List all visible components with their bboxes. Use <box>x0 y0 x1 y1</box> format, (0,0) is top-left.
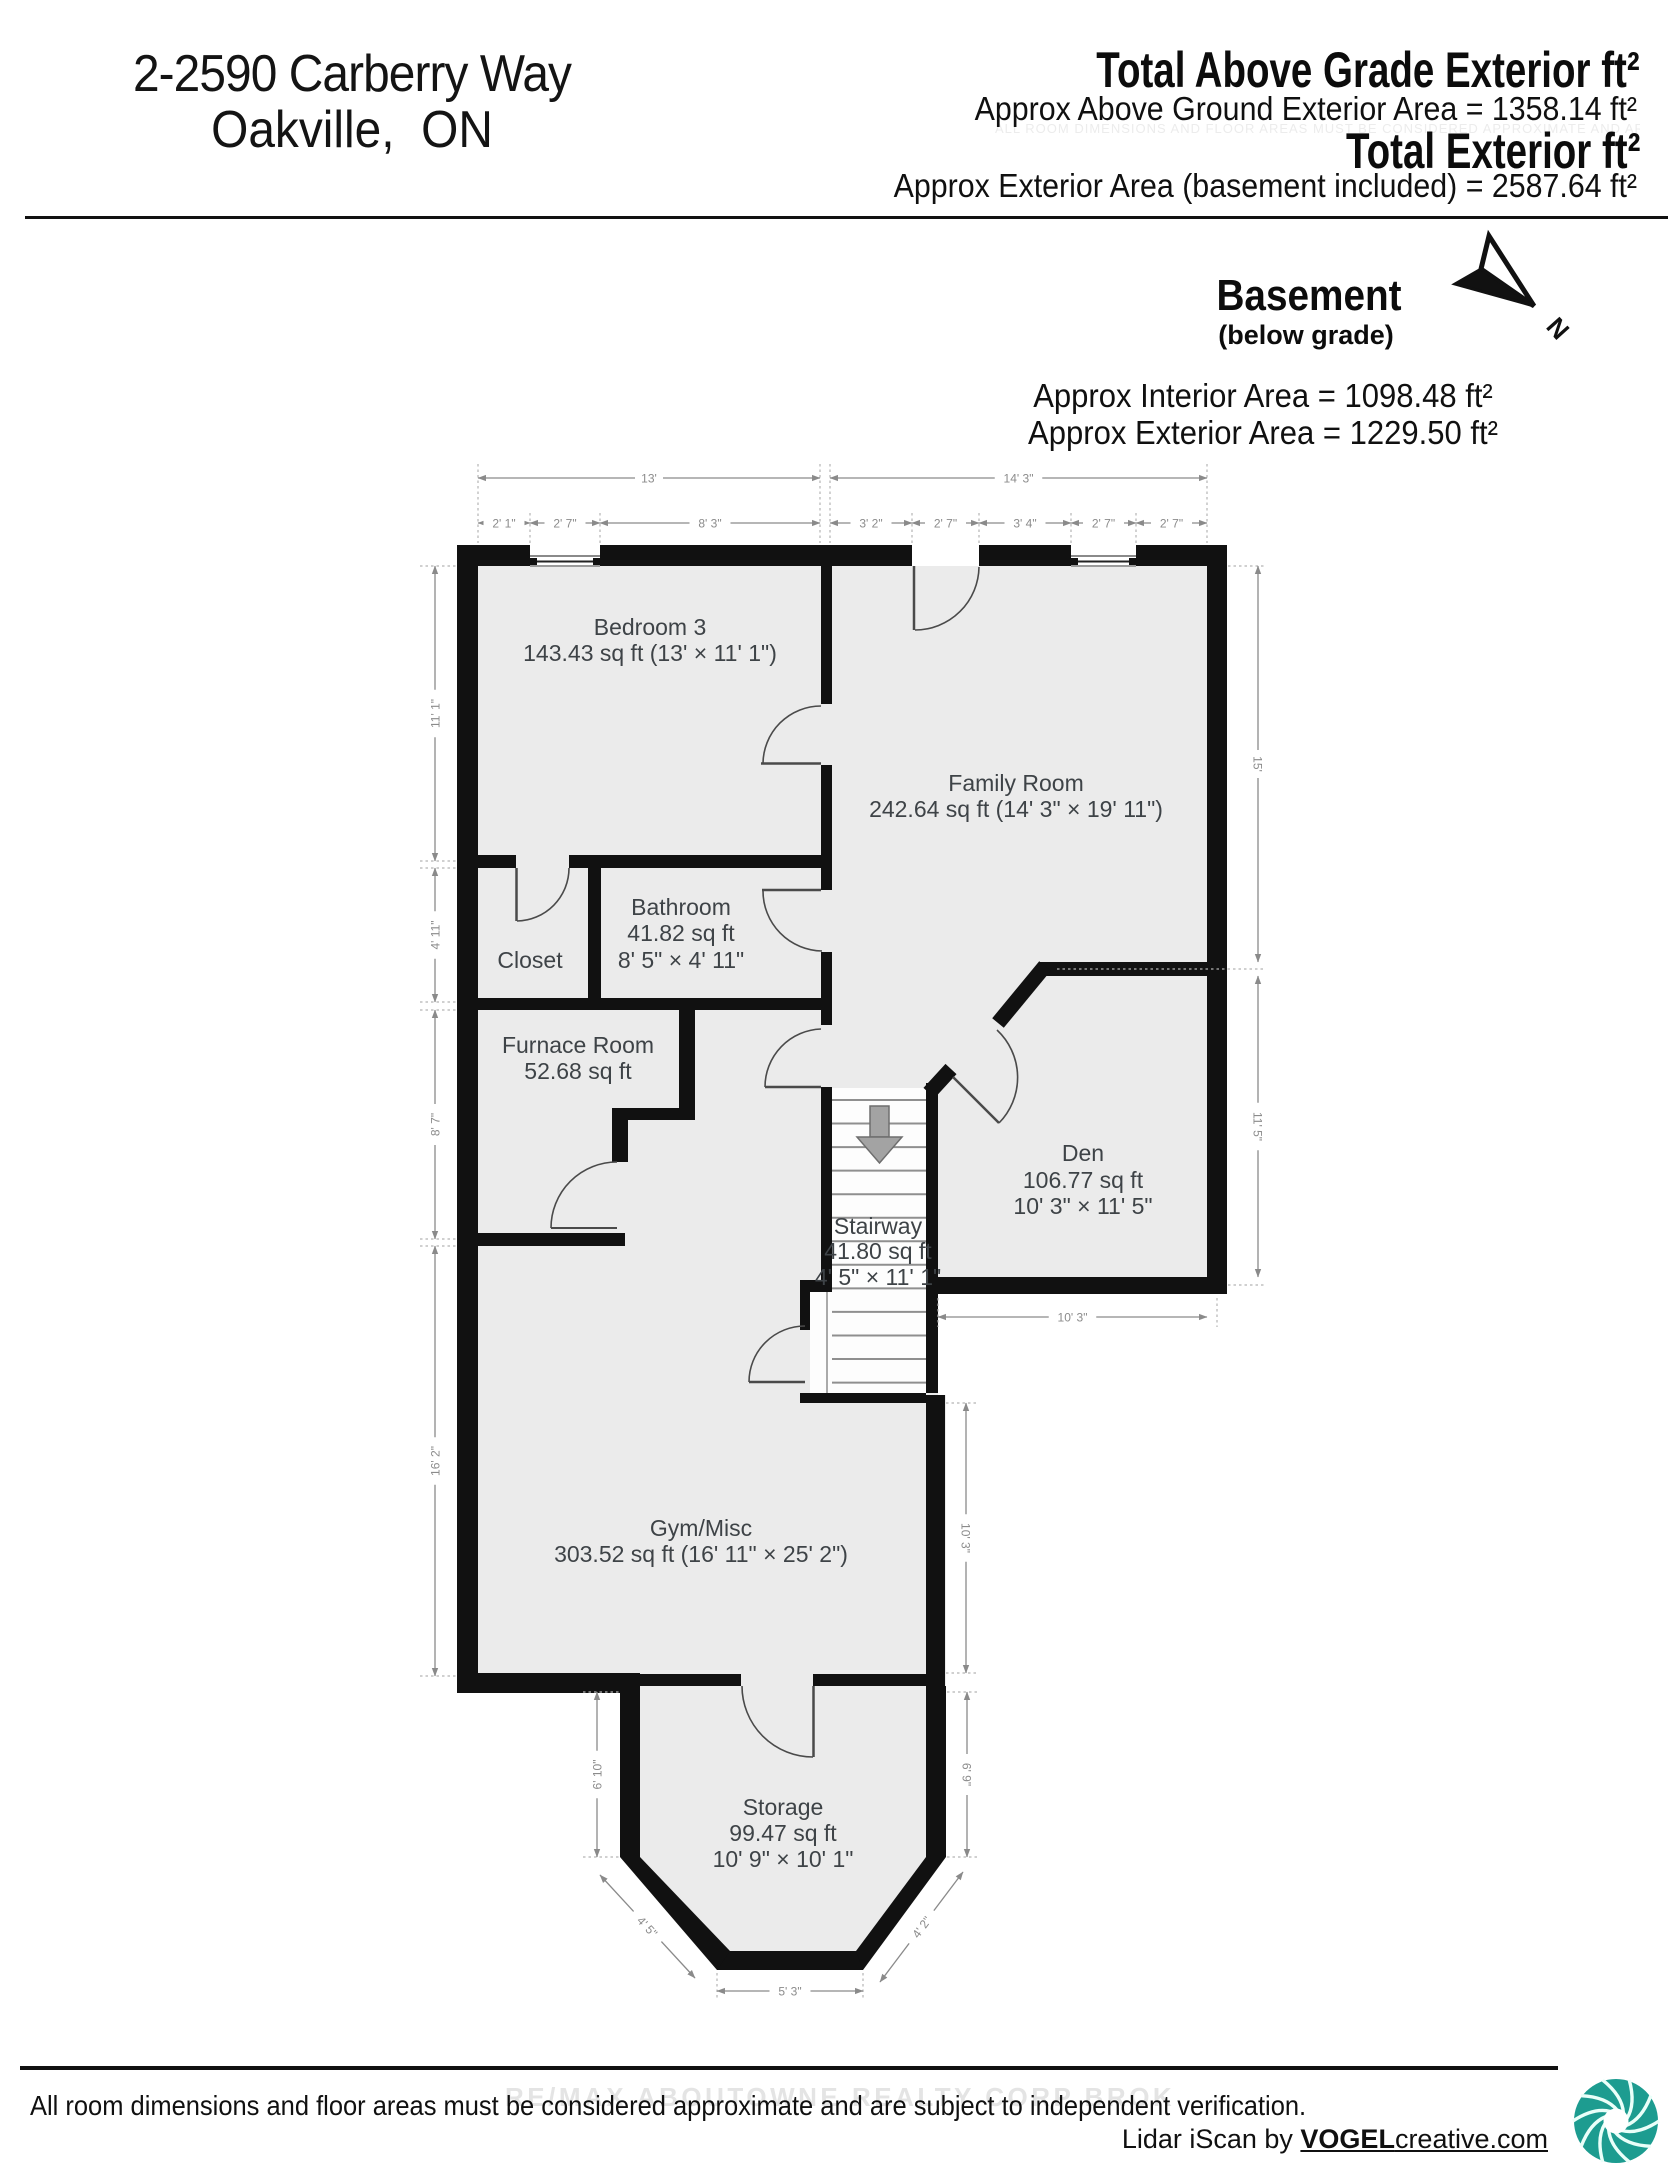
svg-text:8' 7": 8' 7" <box>429 1113 443 1136</box>
svg-text:2' 7": 2' 7" <box>1160 517 1183 531</box>
svg-text:2' 7": 2' 7" <box>553 517 576 531</box>
svg-text:10' 3" × 11' 5": 10' 3" × 11' 5" <box>1013 1193 1152 1219</box>
svg-text:6' 10": 6' 10" <box>591 1760 605 1790</box>
svg-text:11' 5": 11' 5" <box>1251 1112 1265 1141</box>
svg-text:15': 15' <box>1251 756 1265 772</box>
svg-text:10' 9" × 10' 1": 10' 9" × 10' 1" <box>713 1846 854 1872</box>
svg-text:3' 4": 3' 4" <box>1013 517 1036 531</box>
svg-text:Furnace Room: Furnace Room <box>502 1032 654 1058</box>
svg-text:8' 5" × 4' 11": 8' 5" × 4' 11" <box>618 947 744 973</box>
svg-text:11' 1": 11' 1" <box>429 699 443 728</box>
svg-text:106.77 sq ft: 106.77 sq ft <box>1023 1167 1144 1193</box>
svg-text:Den: Den <box>1062 1140 1104 1166</box>
svg-text:41.82 sq ft: 41.82 sq ft <box>627 920 735 946</box>
svg-text:4' 11": 4' 11" <box>429 920 443 949</box>
svg-text:N: N <box>1541 311 1576 345</box>
svg-text:6' 9": 6' 9" <box>960 1763 974 1786</box>
svg-text:Bathroom: Bathroom <box>631 894 731 920</box>
svg-text:52.68 sq ft: 52.68 sq ft <box>524 1058 632 1084</box>
svg-text:Closet: Closet <box>497 947 563 973</box>
svg-text:5' 3": 5' 3" <box>778 1985 801 1999</box>
svg-text:3' 2": 3' 2" <box>859 517 882 531</box>
svg-text:16' 2": 16' 2" <box>429 1446 443 1476</box>
svg-text:Bedroom 3: Bedroom 3 <box>594 614 707 640</box>
svg-text:143.43 sq ft (13' × 11' 1"): 143.43 sq ft (13' × 11' 1") <box>523 640 777 666</box>
svg-text:10' 3": 10' 3" <box>1058 1311 1088 1325</box>
svg-text:303.52 sq ft (16' 11" × 25' 2": 303.52 sq ft (16' 11" × 25' 2") <box>554 1541 848 1567</box>
svg-text:242.64 sq ft (14' 3" × 19' 11": 242.64 sq ft (14' 3" × 19' 11") <box>869 796 1163 822</box>
svg-text:Storage: Storage <box>743 1794 824 1820</box>
svg-text:4' 5" × 11' 1": 4' 5" × 11' 1" <box>815 1264 941 1290</box>
svg-text:99.47 sq ft: 99.47 sq ft <box>729 1820 837 1846</box>
svg-text:Stairway: Stairway <box>834 1213 923 1239</box>
svg-text:41.80 sq ft: 41.80 sq ft <box>824 1238 932 1264</box>
svg-text:Gym/Misc: Gym/Misc <box>650 1515 752 1541</box>
svg-text:2' 7": 2' 7" <box>934 517 957 531</box>
svg-text:10' 3": 10' 3" <box>959 1523 973 1553</box>
svg-text:Family Room: Family Room <box>948 770 1083 796</box>
svg-text:14' 3": 14' 3" <box>1004 472 1034 486</box>
svg-text:8' 3": 8' 3" <box>698 517 721 531</box>
svg-text:2' 1": 2' 1" <box>492 517 515 531</box>
svg-text:13': 13' <box>641 472 657 486</box>
svg-text:2' 7": 2' 7" <box>1092 517 1115 531</box>
